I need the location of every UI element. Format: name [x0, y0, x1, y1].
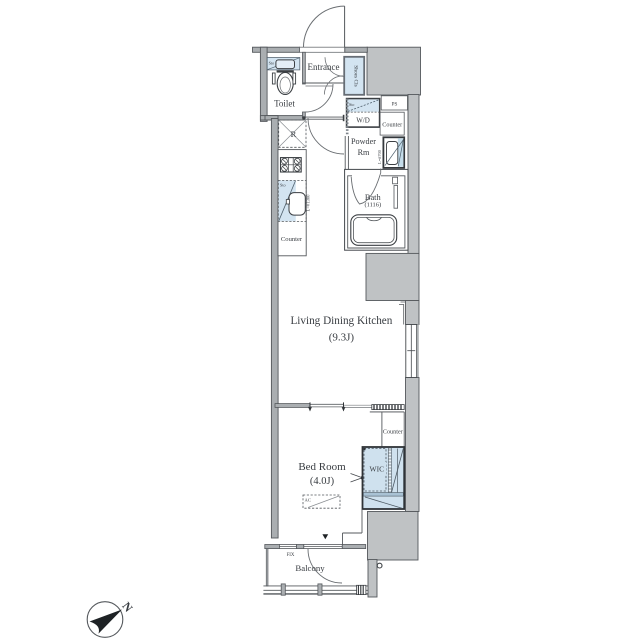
svg-text:Shoes Cls: Shoes Cls	[353, 65, 359, 86]
svg-text:R: R	[291, 129, 297, 139]
svg-text:W/D: W/D	[356, 117, 370, 125]
svg-text:Sto: Sto	[280, 183, 286, 188]
svg-text:Sto: Sto	[349, 102, 354, 107]
svg-text:L=#700: L=#700	[377, 149, 382, 164]
svg-text:PS: PS	[392, 102, 398, 108]
svg-text:Toilet: Toilet	[274, 99, 295, 109]
svg-text:(1116): (1116)	[365, 202, 382, 209]
svg-text:FIX: FIX	[287, 553, 295, 558]
svg-text:Counter: Counter	[281, 236, 303, 243]
svg-text:AC: AC	[305, 498, 311, 503]
svg-text:Counter: Counter	[382, 122, 402, 129]
svg-text:Entrance: Entrance	[308, 62, 340, 72]
svg-text:L=#1300: L=#1300	[306, 194, 311, 212]
svg-text:(9.3J): (9.3J)	[329, 332, 355, 344]
svg-text:Sto: Sto	[269, 60, 275, 65]
svg-text:WIC: WIC	[370, 464, 385, 473]
svg-text:Balcony: Balcony	[295, 563, 325, 573]
svg-text:Rm: Rm	[358, 148, 370, 157]
svg-text:(4.0J): (4.0J)	[310, 476, 335, 487]
svg-text:Bath: Bath	[365, 193, 382, 202]
svg-text:Powder: Powder	[351, 137, 376, 146]
svg-text:Counter: Counter	[383, 429, 403, 436]
svg-text:Living Dining Kitchen: Living Dining Kitchen	[290, 315, 392, 327]
svg-text:Bed Room: Bed Room	[298, 461, 346, 473]
